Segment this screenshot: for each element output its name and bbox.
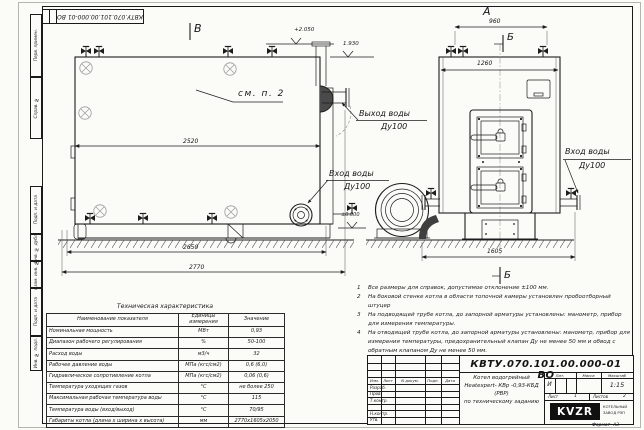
spec-table-title: Техническая характеристика — [46, 303, 284, 310]
spec-unit: м3/ч — [179, 349, 229, 360]
spec-value: 0,6 (6,0) — [229, 360, 285, 371]
note-item: 1Все размеры для справок, допустимое отк… — [352, 284, 633, 293]
table-row: Максимальная рабочая температура воды°С1… — [47, 394, 285, 405]
dim-1605: 1605 — [487, 249, 502, 255]
rev-col-sign: Подп. — [425, 379, 441, 383]
role-nkontr: Н.контр. — [370, 412, 388, 416]
see-note-ref: см. п. 2 — [238, 90, 285, 99]
title-block: КВТУ.070.101.00.000-01 ВО Изм. Лист N до… — [367, 355, 634, 425]
label-water-inlet-side-dn: Ду100 — [344, 183, 370, 191]
spec-name: Рабочее давление воды — [47, 360, 179, 371]
side-view — [71, 23, 374, 243]
spec-value: 0,93 — [229, 327, 285, 338]
door-handle — [471, 135, 497, 140]
product-name-line2: Heatexpert- КВр -0,93-КБД (РВР) — [460, 382, 543, 398]
spec-unit: % — [179, 338, 229, 349]
spec-name: Расход воды — [47, 349, 179, 360]
sheets-label: Листов — [593, 395, 608, 399]
spec-unit: °С — [179, 405, 229, 416]
rev-col-izm: Изм. — [368, 379, 381, 383]
format-label: Формат А3 — [592, 424, 619, 429]
rev-col-list: Лист — [381, 379, 395, 383]
ground-hatch — [58, 240, 574, 248]
lower-door — [471, 161, 526, 208]
role-tkontr: Т.контр. — [370, 399, 388, 403]
label-water-inlet-right: Вход воды — [565, 148, 610, 156]
padlock-icon — [498, 179, 503, 183]
section-label-b-bottom: Б — [504, 271, 511, 281]
spec-unit: °С — [179, 382, 229, 393]
company-name: КОТЕЛЬНЫЙ ЗАВОД РЭП — [603, 405, 627, 416]
lit-value: И — [544, 382, 555, 388]
note-item: 4На отводящей трубе котла, до запорной а… — [352, 329, 633, 356]
door-handle — [471, 185, 497, 190]
upper-door — [471, 117, 526, 158]
note-text: На подводящей трубе котла, до запорной а… — [368, 311, 633, 329]
blower-fan — [374, 184, 439, 240]
spec-name: Температура воды (вход/выход) — [47, 405, 179, 416]
dim-960: 960 — [489, 19, 500, 25]
spec-name: Гидравлическое сопротивление котла — [47, 371, 179, 382]
sheet-label: Лист — [548, 395, 558, 399]
product-name-line3: по техническому заданию — [460, 398, 543, 406]
table-row: Гидравлическое сопротивление котлаМПа (к… — [47, 371, 285, 382]
sheet-value: 1 — [574, 395, 577, 400]
table-row: Рабочее давление водыМПа (кгс/см2)0,6 (6… — [47, 360, 285, 371]
label-water-inlet-side: Вход воды — [329, 170, 374, 178]
spec-value: 70/95 — [229, 405, 285, 416]
scale-label: Масштаб — [601, 374, 633, 378]
product-name-line1: Котел водогрейный — [460, 374, 543, 382]
padlock-icon — [498, 129, 503, 133]
kvzr-logo: KVZR — [550, 403, 600, 420]
spec-name: Номинальная мощность — [47, 327, 179, 338]
table-row: Номинальная мощностьМВт0,93 — [47, 327, 285, 338]
label-water-inlet-right-dn: Ду100 — [579, 162, 605, 170]
format-value: А3 — [613, 423, 619, 428]
spec-col-unit: Единицы измерения — [179, 314, 229, 327]
note-item: 3На подводящей трубе котла, до запорной … — [352, 311, 633, 329]
flange-icon — [290, 204, 312, 226]
mount-cross-icons — [79, 62, 237, 218]
note-number: 3 — [352, 311, 368, 329]
title-block-name: Котел водогрейный Heatexpert- КВр -0,93-… — [460, 374, 543, 406]
role-prov: Пров. — [370, 392, 382, 396]
elevation-mid: 1.930 — [343, 42, 359, 48]
spec-unit: °С — [179, 394, 229, 405]
spec-name: Максимальная рабочая температура воды — [47, 394, 179, 405]
format-word: Формат — [592, 423, 610, 428]
rev-col-doc: N докум. — [395, 379, 425, 383]
table-row: Температура воды (вход/выход)°С70/95 — [47, 405, 285, 416]
spec-header-row: Наименование показателя Единицы измерени… — [47, 314, 285, 327]
elevation-zero: ±0.000 — [341, 213, 360, 218]
note-number: 2 — [352, 293, 368, 311]
table-row: Температура уходящих газов°Сне более 250 — [47, 382, 285, 393]
note-text: На отводящей трубе котла, до запорной ар… — [368, 329, 633, 356]
sheets-value: 2 — [623, 395, 626, 400]
view-label-a: А — [483, 6, 491, 17]
spec-unit: МВт — [179, 327, 229, 338]
dim-1260: 1260 — [477, 61, 492, 67]
note-number: 1 — [352, 284, 368, 293]
section-label-b-top: Б — [507, 33, 514, 43]
valve-icons-side — [81, 47, 357, 225]
dim-2650: 2650 — [183, 245, 198, 251]
title-block-doc-number: КВТУ.070.101.00.000-01 ВО — [461, 359, 631, 372]
mass-label: Масса — [576, 374, 601, 378]
note-text: Все размеры для справок, допустимое откл… — [368, 284, 633, 293]
spec-value: 0,06 (0,6) — [229, 371, 285, 382]
table-row: Габариты котла (длина х ширина х высота)… — [47, 416, 285, 427]
outlet-elbow — [320, 86, 333, 112]
role-utv: Утв. — [370, 418, 379, 422]
table-row: Диапазон рабочего регулирования%50-100 — [47, 338, 285, 349]
valve-icons-front — [426, 47, 576, 200]
spec-table-block: Техническая характеристика Наименование … — [46, 303, 284, 428]
spec-name: Диапазон рабочего регулирования — [47, 338, 179, 349]
drawing-sheet: Перв. примен. Справ. № Подп. и дата Инв.… — [0, 0, 644, 430]
spec-unit: МПа (кгс/см2) — [179, 371, 229, 382]
spec-name: Габариты котла (длина х ширина х высота) — [47, 416, 179, 427]
spec-value: 32 — [229, 349, 285, 360]
dim-2770: 2770 — [189, 265, 204, 271]
spec-value: не более 250 — [229, 382, 285, 393]
spec-col-name: Наименование показателя — [47, 314, 179, 327]
spec-value: 115 — [229, 394, 285, 405]
note-item: 2На боковой стенке котла в области топоч… — [352, 293, 633, 311]
control-panel — [527, 80, 550, 98]
company-name-line2: ЗАВОД РЭП — [603, 411, 627, 417]
role-razrab: Разраб. — [370, 386, 386, 390]
elevation-top: +2.050 — [294, 28, 314, 34]
label-water-outlet: Выход воды — [359, 110, 410, 118]
dim-2520: 2520 — [183, 139, 198, 145]
note-number: 4 — [352, 329, 368, 356]
view-label-b: В — [194, 23, 202, 34]
spec-unit: МПа (кгс/см2) — [179, 360, 229, 371]
rev-col-date: Дата — [441, 379, 459, 383]
note-text: На боковой стенке котла в области топочн… — [368, 293, 633, 311]
spec-value: 2770х1605х2050 — [229, 416, 285, 427]
table-row: Расход водым3/ч32 — [47, 349, 285, 360]
spec-unit: мм — [179, 416, 229, 427]
label-water-outlet-dn: Ду100 — [381, 123, 407, 131]
scale-value: 1:15 — [601, 382, 633, 389]
notes-list: 1Все размеры для справок, допустимое отк… — [352, 284, 633, 356]
fan-duct-elbow — [419, 215, 439, 239]
spec-value: 50-100 — [229, 338, 285, 349]
lit-label: Лит. — [544, 374, 576, 378]
spec-col-value: Значение — [229, 314, 285, 327]
company-name-line1: КОТЕЛЬНЫЙ — [603, 405, 627, 411]
spec-table: Наименование показателя Единицы измерени… — [46, 313, 285, 428]
spec-name: Температура уходящих газов — [47, 382, 179, 393]
